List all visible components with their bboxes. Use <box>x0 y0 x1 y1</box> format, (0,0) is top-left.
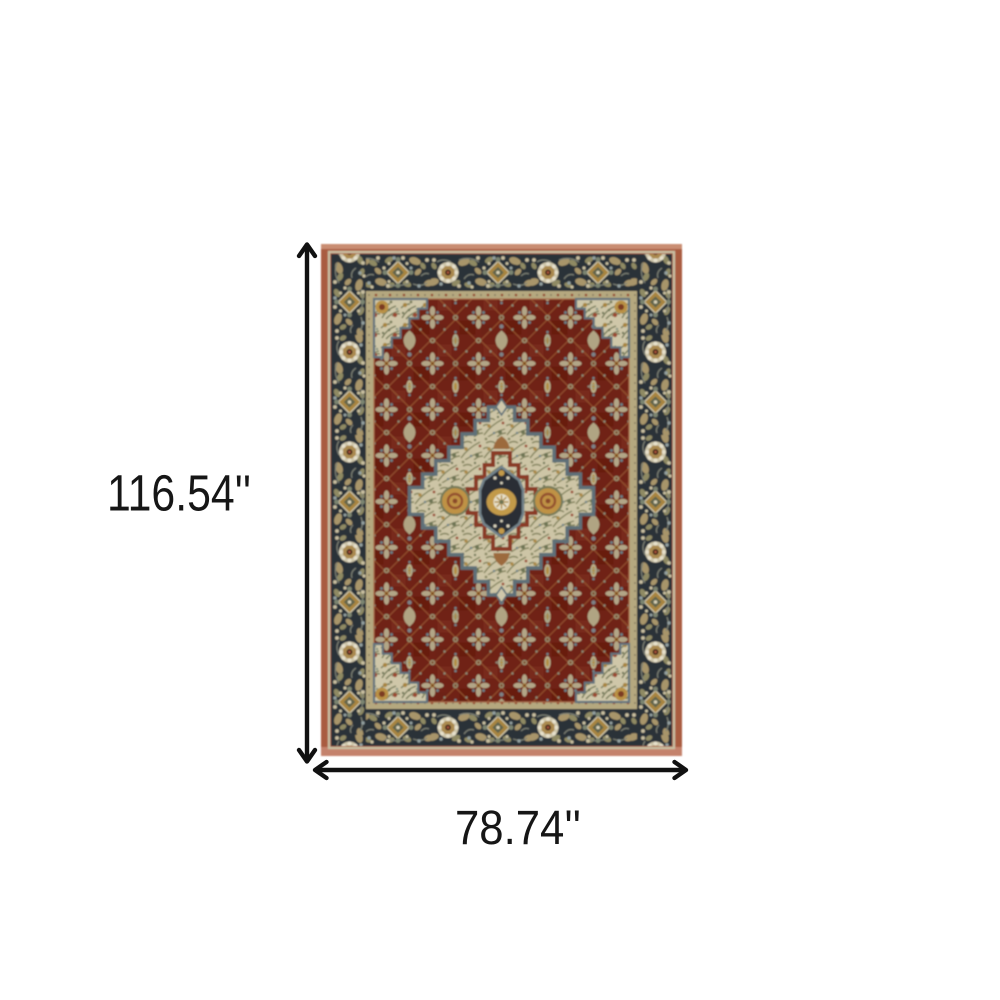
svg-text:78.74'': 78.74'' <box>455 802 581 855</box>
svg-text:116.54'': 116.54'' <box>107 465 251 522</box>
